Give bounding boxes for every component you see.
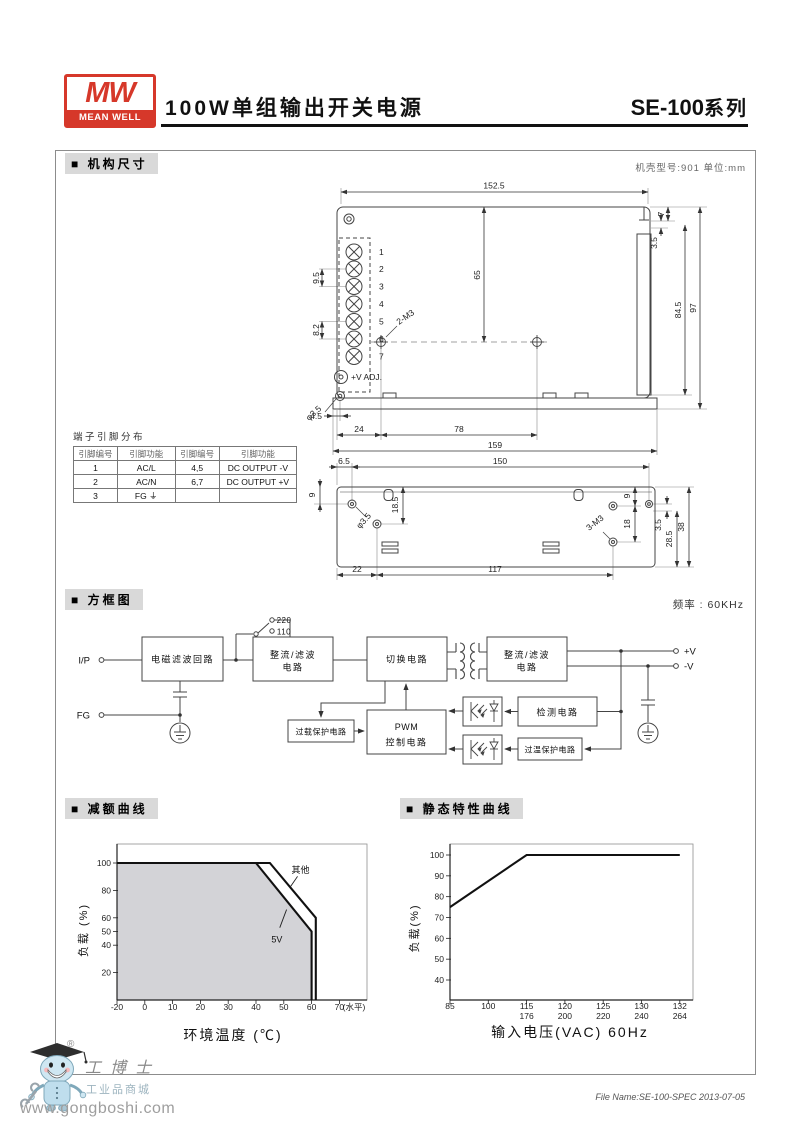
- switch-label-220: 220: [277, 616, 292, 625]
- table-cell: [219, 489, 296, 503]
- block-label-rectifier2: 整流/滤波: [504, 649, 550, 660]
- terminal-label-vplus: +V: [684, 647, 697, 658]
- x-tick-label: 120: [558, 1001, 572, 1011]
- pin-number: 4: [379, 299, 384, 309]
- dim-label: 3.5: [653, 519, 663, 531]
- x-tick-label: 40: [251, 1002, 261, 1012]
- table-row: 1 AC/L 4,5 DC OUTPUT -V: [74, 461, 297, 475]
- pin-number: 3: [379, 282, 384, 292]
- y-tick-label: 50: [435, 954, 445, 964]
- mech-top-view-drawing: 152.5 9.5 8.2 65 4.5 24 78 159 7 3.5 84.…: [295, 172, 755, 460]
- section-title-mech: ■ 机构尺寸: [65, 153, 158, 174]
- table-row: 2 AC/N 6,7 DC OUTPUT +V: [74, 475, 297, 489]
- datasheet-page: MW MEAN WELL 100W单组输出开关电源 SE-100系列 ■ 机构尺…: [0, 0, 800, 1131]
- pin-number: 1: [379, 247, 384, 257]
- terminal-label-vminus: -V: [684, 662, 694, 673]
- block-diagram: I/P FG +V -V 220 110 电磁滤波回路 整流/滤波 电路 切换电…: [60, 612, 750, 797]
- y-tick-label: 20: [102, 968, 112, 978]
- x-tick-sublabel: 220: [596, 1011, 610, 1021]
- table-header-row: 引脚编号 引脚功能 引脚编号 引脚功能: [74, 447, 297, 461]
- pin-table-title: 端子引脚分布: [73, 429, 297, 443]
- block-label-switching: 切换电路: [386, 654, 428, 665]
- y-tick-label: 50: [102, 927, 112, 937]
- x-tick-sublabel: 264: [673, 1011, 687, 1021]
- x-axis-title: 环境温度 (℃): [183, 1027, 282, 1043]
- wires: [104, 620, 674, 722]
- dim-label: 152.5: [483, 181, 505, 191]
- dim-label: 18.5: [390, 496, 400, 513]
- derating-chart: 2040506080100-20010203040506070(水平)其他5V环…: [65, 835, 385, 1050]
- y-axis-title: 负载 (%): [76, 903, 90, 957]
- table-cell: FG ⏚: [117, 489, 175, 503]
- terminal-label-fg: FG: [77, 711, 90, 722]
- table-header-cell: 引脚编号: [175, 447, 219, 461]
- section-title-static: ■ 静态特性曲线: [400, 798, 523, 819]
- table-cell: 3: [74, 489, 118, 503]
- x-tick-label: 50: [279, 1002, 289, 1012]
- mounting-holes: [371, 335, 547, 349]
- dim-label: 9: [307, 492, 317, 497]
- y-tick-label: 80: [435, 892, 445, 902]
- annotation-label: 5V: [271, 935, 282, 945]
- x-tick-label: 132: [673, 1001, 687, 1011]
- table-cell: 6,7: [175, 475, 219, 489]
- pin-number: 7: [379, 352, 384, 362]
- page-title: 100W单组输出开关电源: [165, 92, 424, 122]
- block-label-emi: 电磁滤波回路: [151, 654, 214, 665]
- dim-label: 9.5: [311, 272, 321, 284]
- table-cell: DC OUTPUT +V: [219, 475, 296, 489]
- section-title-derating: ■ 减额曲线: [65, 798, 158, 819]
- dim-label: 97: [688, 303, 698, 313]
- small-dimension-arrows: [324, 213, 661, 416]
- y-tick-label: 70: [435, 913, 445, 923]
- x-tick-sublabel: 240: [634, 1011, 648, 1021]
- x-tick-label: 0: [142, 1002, 147, 1012]
- x-tick-label: -20: [111, 1002, 124, 1012]
- x-tick-label: 115: [520, 1001, 534, 1011]
- series-model: SE-100: [631, 95, 704, 120]
- y-tick-label: 80: [102, 885, 112, 895]
- x-tick-label: 60: [307, 1002, 317, 1012]
- annotation-label: 其他: [291, 864, 309, 875]
- dim-label: 7: [656, 211, 666, 216]
- x-tick-label: 10: [168, 1002, 178, 1012]
- meanwell-logo: MW MEAN WELL: [64, 74, 156, 128]
- table-cell: DC OUTPUT -V: [219, 461, 296, 475]
- extension-lines: [319, 188, 707, 455]
- dim-label: 24: [354, 424, 364, 434]
- table-cell: AC/N: [117, 475, 175, 489]
- table-cell: AC/L: [117, 461, 175, 475]
- part-label: +V ADJ.: [351, 372, 382, 382]
- dim-label: 9: [622, 493, 632, 498]
- dimension-lines: [337, 467, 689, 575]
- mech-side-view-drawing: 6.5 150 9 18.5 φ3.5 9 18 3-M3 3.5 28.5 3…: [300, 455, 755, 585]
- dim-label: 8.2: [311, 324, 321, 336]
- x-tick-sublabel: 200: [558, 1011, 572, 1021]
- dim-label: 84.5: [673, 301, 683, 318]
- pin-number: 5: [379, 317, 384, 327]
- switch-label-110: 110: [277, 628, 291, 637]
- block-label-rectifier2b: 电路: [516, 662, 537, 673]
- frequency-note: 频率 : 60KHz: [673, 597, 744, 612]
- dim-label: 117: [488, 564, 502, 574]
- x-tick-sublabel: 176: [520, 1011, 534, 1021]
- block-label-rectifier1b: 电路: [282, 662, 303, 673]
- y-tick-label: 40: [435, 975, 445, 985]
- table-header-cell: 引脚功能: [219, 447, 296, 461]
- x-tick-label: 30: [223, 1002, 233, 1012]
- title-underline: [161, 124, 748, 127]
- part-label: 2-M3: [394, 307, 416, 326]
- table-header-cell: 引脚编号: [74, 447, 118, 461]
- y-tick-label: 60: [435, 933, 445, 943]
- watermark-subtitle: 工业品商城: [86, 1081, 151, 1097]
- small-dimension-arrows: [320, 467, 667, 519]
- block-label-pwm: PWM: [395, 722, 419, 732]
- case-outline: [337, 487, 655, 567]
- static-characteristic-chart: 4050607080901008510011517612020012522013…: [400, 835, 745, 1050]
- x-axis-suffix: (水平): [343, 1002, 366, 1012]
- x-tick-label: 100: [481, 1001, 495, 1011]
- table-cell: 2: [74, 475, 118, 489]
- block-label-overload: 过载保护电路: [296, 727, 347, 737]
- terminal-label-ip: I/P: [78, 656, 90, 667]
- dim-label: 65: [472, 270, 482, 280]
- table-cell: 1: [74, 461, 118, 475]
- plot-frame: [450, 844, 693, 1000]
- dim-label: 28.5: [664, 530, 674, 547]
- table-cell: 4,5: [175, 461, 219, 475]
- part-label: φ3.5: [354, 511, 373, 531]
- optocoupler-icon: [471, 700, 498, 760]
- logo-mw-text: MW: [67, 77, 153, 110]
- dim-label: 159: [488, 440, 502, 450]
- block-label-detect: 检测电路: [536, 707, 578, 718]
- x-tick-label: 85: [445, 1001, 455, 1011]
- dim-label: 6.5: [338, 456, 350, 466]
- pin-number: 6: [379, 334, 384, 344]
- series-title: SE-100系列: [631, 92, 748, 121]
- pin-number: 2: [379, 264, 384, 274]
- series-suffix: 系列: [704, 98, 748, 120]
- table-row: 3 FG ⏚: [74, 489, 297, 503]
- terminal-screws: [346, 244, 362, 365]
- dim-label: 22: [352, 564, 362, 574]
- dim-label: 18: [622, 519, 632, 529]
- y-tick-label: 40: [102, 940, 112, 950]
- y-tick-label: 100: [97, 858, 111, 868]
- section-title-block: ■ 方框图: [65, 589, 143, 610]
- y-axis-title: 负载(%): [407, 903, 421, 952]
- table-header-cell: 引脚功能: [117, 447, 175, 461]
- y-tick-label: 60: [102, 913, 112, 923]
- x-tick-label: 125: [596, 1001, 610, 1011]
- table-cell: [175, 489, 219, 503]
- watermark-url: www.gongboshi.com: [20, 1100, 175, 1118]
- dim-label: 38: [676, 522, 686, 532]
- watermark-brand: 工博士: [85, 1054, 160, 1078]
- y-tick-label: 100: [430, 850, 444, 860]
- logo-brand-text: MEAN WELL: [67, 110, 153, 125]
- part-label: 3-M3: [584, 513, 606, 533]
- registered-mark: ®: [67, 1039, 74, 1050]
- x-axis-title: 输入电压(VAC) 60Hz: [491, 1024, 649, 1040]
- y-tick-label: 90: [435, 871, 445, 881]
- dim-label: 3.5: [649, 237, 659, 249]
- dim-label: 150: [493, 456, 507, 466]
- x-tick-label: 130: [634, 1001, 648, 1011]
- dim-label: 78: [454, 424, 464, 434]
- block-label-pwm-ctrl: 控制电路: [385, 737, 427, 748]
- pin-table: 端子引脚分布 引脚编号 引脚功能 引脚编号 引脚功能 1 AC/L 4,5 DC…: [73, 429, 297, 503]
- transformer-icon: [456, 643, 479, 679]
- extension-lines: [314, 463, 694, 580]
- block-label-rectifier1: 整流/滤波: [270, 649, 316, 660]
- block-label-otp: 过温保护电路: [525, 745, 576, 755]
- x-tick-label: 20: [196, 1002, 206, 1012]
